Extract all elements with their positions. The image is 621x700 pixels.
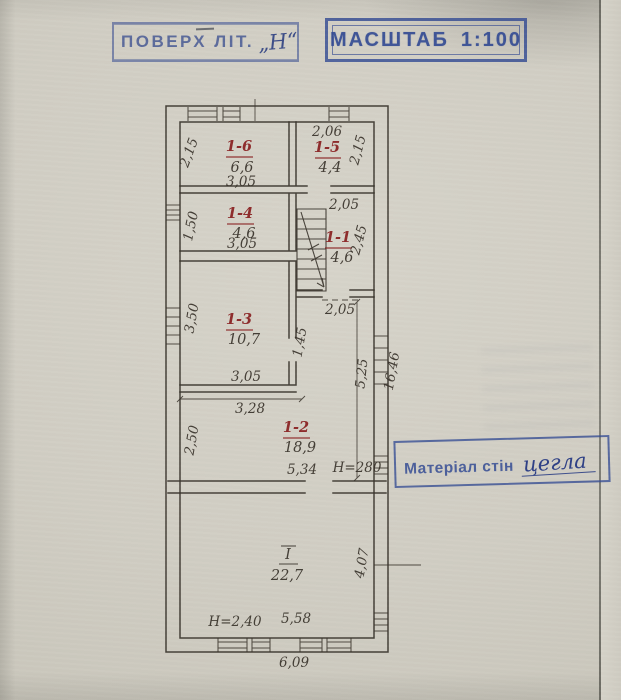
dim-room14-depth: 1,50 bbox=[180, 209, 202, 242]
dim-room16-width: 3,05 bbox=[226, 174, 256, 190]
dim-room12-width: 5,34 bbox=[287, 462, 317, 478]
room-1-6-number: 1-6 bbox=[226, 138, 252, 155]
room-1-2-area: 18,9 bbox=[284, 440, 316, 456]
dim-room12-height-note: Н=280 bbox=[332, 460, 382, 476]
document-photo: ПОВЕРХ ЛІТ. „Н“ МАСШТАБ 1:100 Матеріал с… bbox=[0, 0, 621, 700]
dimension-labels: 2,06 3,05 2,05 3,05 3,05 3,28 2,05 5,34 … bbox=[176, 124, 403, 671]
room-1-3-number: 1-3 bbox=[226, 311, 252, 328]
stairs-symbol bbox=[297, 209, 326, 291]
dim-hall-top: 2,05 bbox=[328, 197, 359, 213]
room-I-number: І bbox=[284, 547, 291, 563]
dim-room14-width: 3,05 bbox=[227, 236, 257, 252]
room-I-area: 22,7 bbox=[270, 568, 304, 584]
dim-hall-bottom: 2,05 bbox=[324, 302, 355, 318]
dim-room15-width: 2,06 bbox=[311, 124, 342, 140]
dim-right-total: 16,46 bbox=[381, 350, 404, 391]
dim-roomI-depth: 4,07 bbox=[351, 547, 372, 581]
dim-right-inner: 5,25 bbox=[352, 358, 371, 390]
dim-roomI-ceiling-note: Н=2,40 bbox=[207, 614, 262, 630]
dim-roomI-width: 5,58 bbox=[281, 611, 311, 627]
room-1-5-area: 4,4 bbox=[317, 160, 341, 176]
room-1-3-area: 10,7 bbox=[228, 332, 261, 348]
room-1-2-number: 1-2 bbox=[283, 419, 309, 436]
dim-room12-depth: 2,50 bbox=[181, 424, 202, 458]
dim-total-width: 6,09 bbox=[279, 655, 309, 671]
room-1-5-number: 1-5 bbox=[314, 139, 340, 156]
dim-room13-depth: 3,50 bbox=[182, 302, 203, 335]
floor-plan-svg: 1-6 6,6 1-5 4,4 1-4 4,6 1-1 4,6 1-3 10,7… bbox=[0, 0, 621, 700]
dim-room13-width: 3,05 bbox=[231, 369, 261, 385]
dim-room13-width-outer: 3,28 bbox=[235, 401, 265, 417]
dim-room15-depth: 2,15 bbox=[346, 133, 369, 167]
dim-room13-jog: 1,45 bbox=[290, 326, 311, 358]
room-1-1-number: 1-1 bbox=[325, 229, 351, 246]
room-1-4-number: 1-4 bbox=[227, 205, 253, 222]
